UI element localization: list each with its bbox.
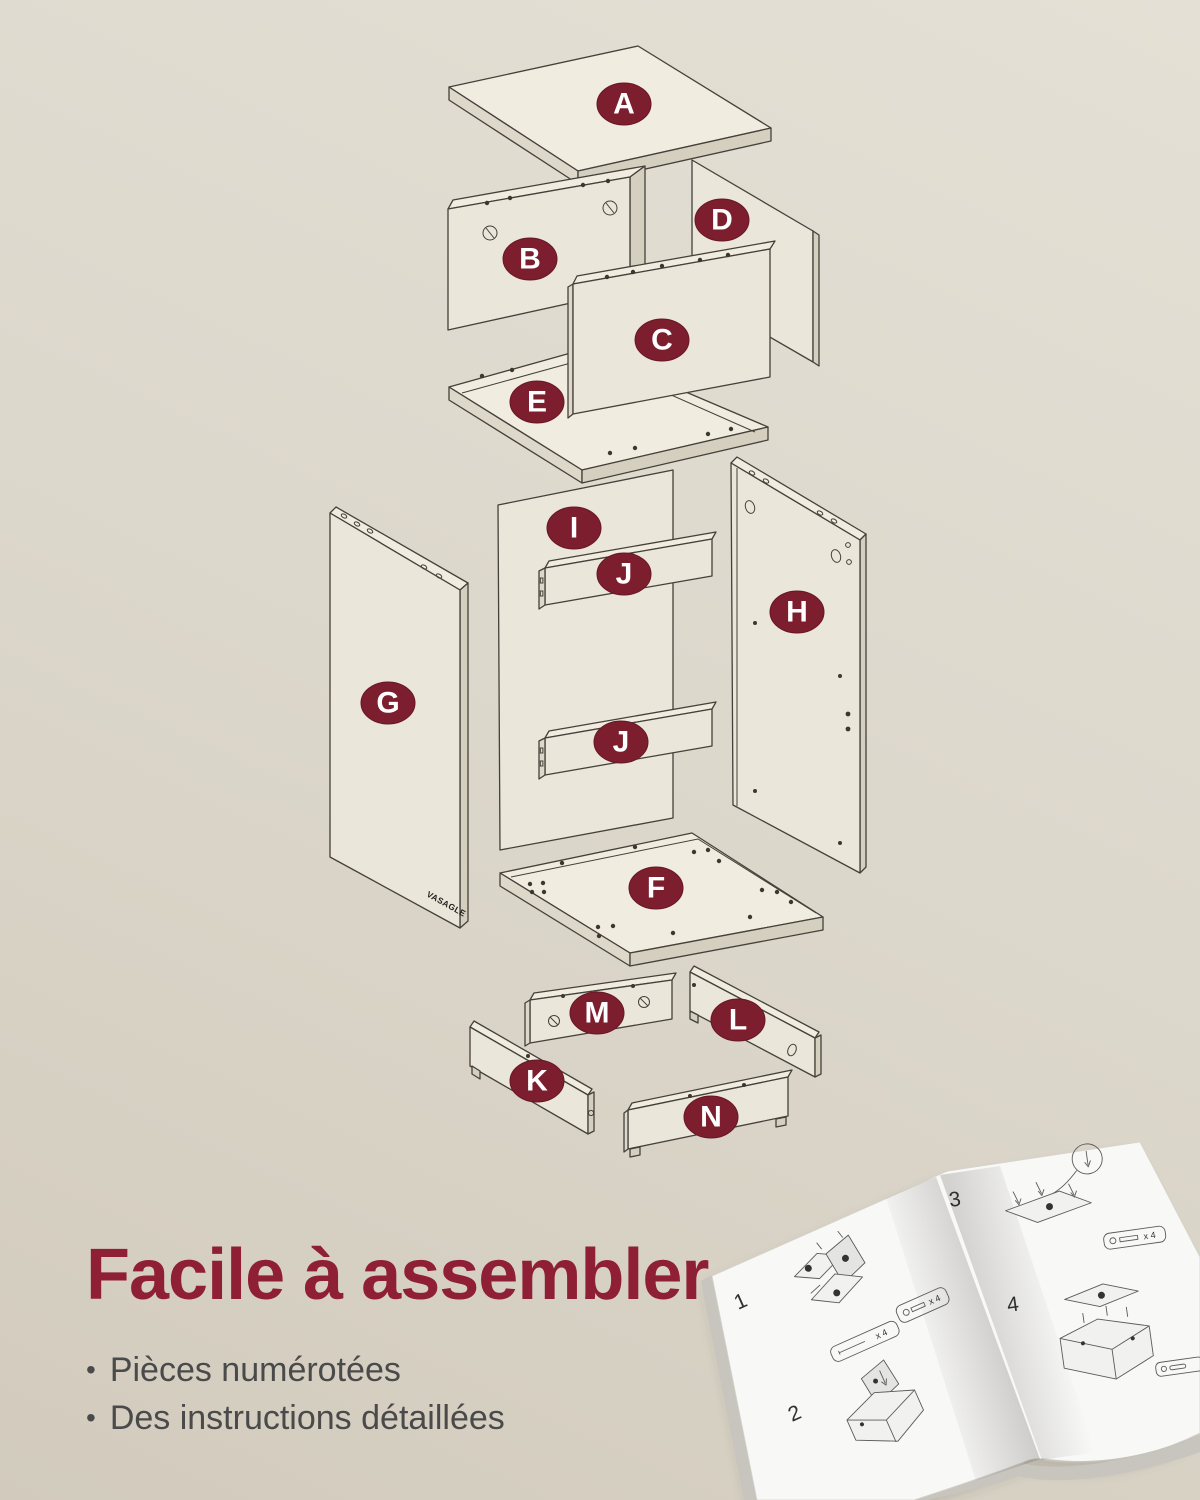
badge-letter: K <box>526 1065 548 1098</box>
feature-caption: Facile à assembler •Pièces numérotées •D… <box>86 1234 708 1442</box>
part-badge-a: A <box>597 83 651 125</box>
part-badge-n: N <box>684 1096 738 1138</box>
bullet-text: Des instructions détaillées <box>110 1399 505 1437</box>
part-badge-h: H <box>770 591 824 633</box>
product-feature-image: VASAGLE <box>0 0 1200 1500</box>
bullet-text: Pièces numérotées <box>110 1351 401 1389</box>
badge-letter: E <box>527 386 547 419</box>
part-badge-c: C <box>635 319 689 361</box>
part-badge-g: G <box>361 682 415 724</box>
badge-letter: D <box>711 204 733 237</box>
badge-letter: J <box>613 726 630 759</box>
instruction-manual: 1 x 4 x 4 2 <box>701 1142 1200 1500</box>
part-badge-k: K <box>510 1060 564 1102</box>
count-label: x 4 <box>1143 1230 1156 1242</box>
part-badge-j-upper: J <box>597 553 651 595</box>
badge-letter: G <box>376 687 399 720</box>
bullet-marker: • <box>86 1354 96 1385</box>
part-badge-e: E <box>510 381 564 423</box>
badge-letter: B <box>519 243 541 276</box>
part-h-side-panel <box>731 457 866 873</box>
part-badge-m: M <box>570 992 624 1034</box>
bullet-item: •Pièces numérotées <box>86 1346 708 1394</box>
badge-letter: H <box>786 596 808 629</box>
part-badge-b: B <box>503 238 557 280</box>
bullet-item: •Des instructions détaillées <box>86 1394 708 1442</box>
part-badge-f: F <box>629 867 683 909</box>
badge-letter: J <box>616 558 633 591</box>
part-badge-d: D <box>695 199 749 241</box>
part-badge-j-lower: J <box>594 721 648 763</box>
badge-letter: F <box>647 872 665 905</box>
badge-letter: A <box>613 88 635 121</box>
badge-letter: M <box>585 997 610 1030</box>
bullet-marker: • <box>86 1402 96 1433</box>
badge-letter: I <box>570 512 578 545</box>
part-badge-l: L <box>711 999 765 1041</box>
part-badge-i: I <box>547 507 601 549</box>
badge-letter: L <box>729 1004 747 1037</box>
feature-bullets: •Pièces numérotées •Des instructions dét… <box>86 1346 708 1442</box>
badge-letter: N <box>700 1101 722 1134</box>
badge-letter: C <box>651 324 673 357</box>
headline: Facile à assembler <box>86 1234 708 1316</box>
